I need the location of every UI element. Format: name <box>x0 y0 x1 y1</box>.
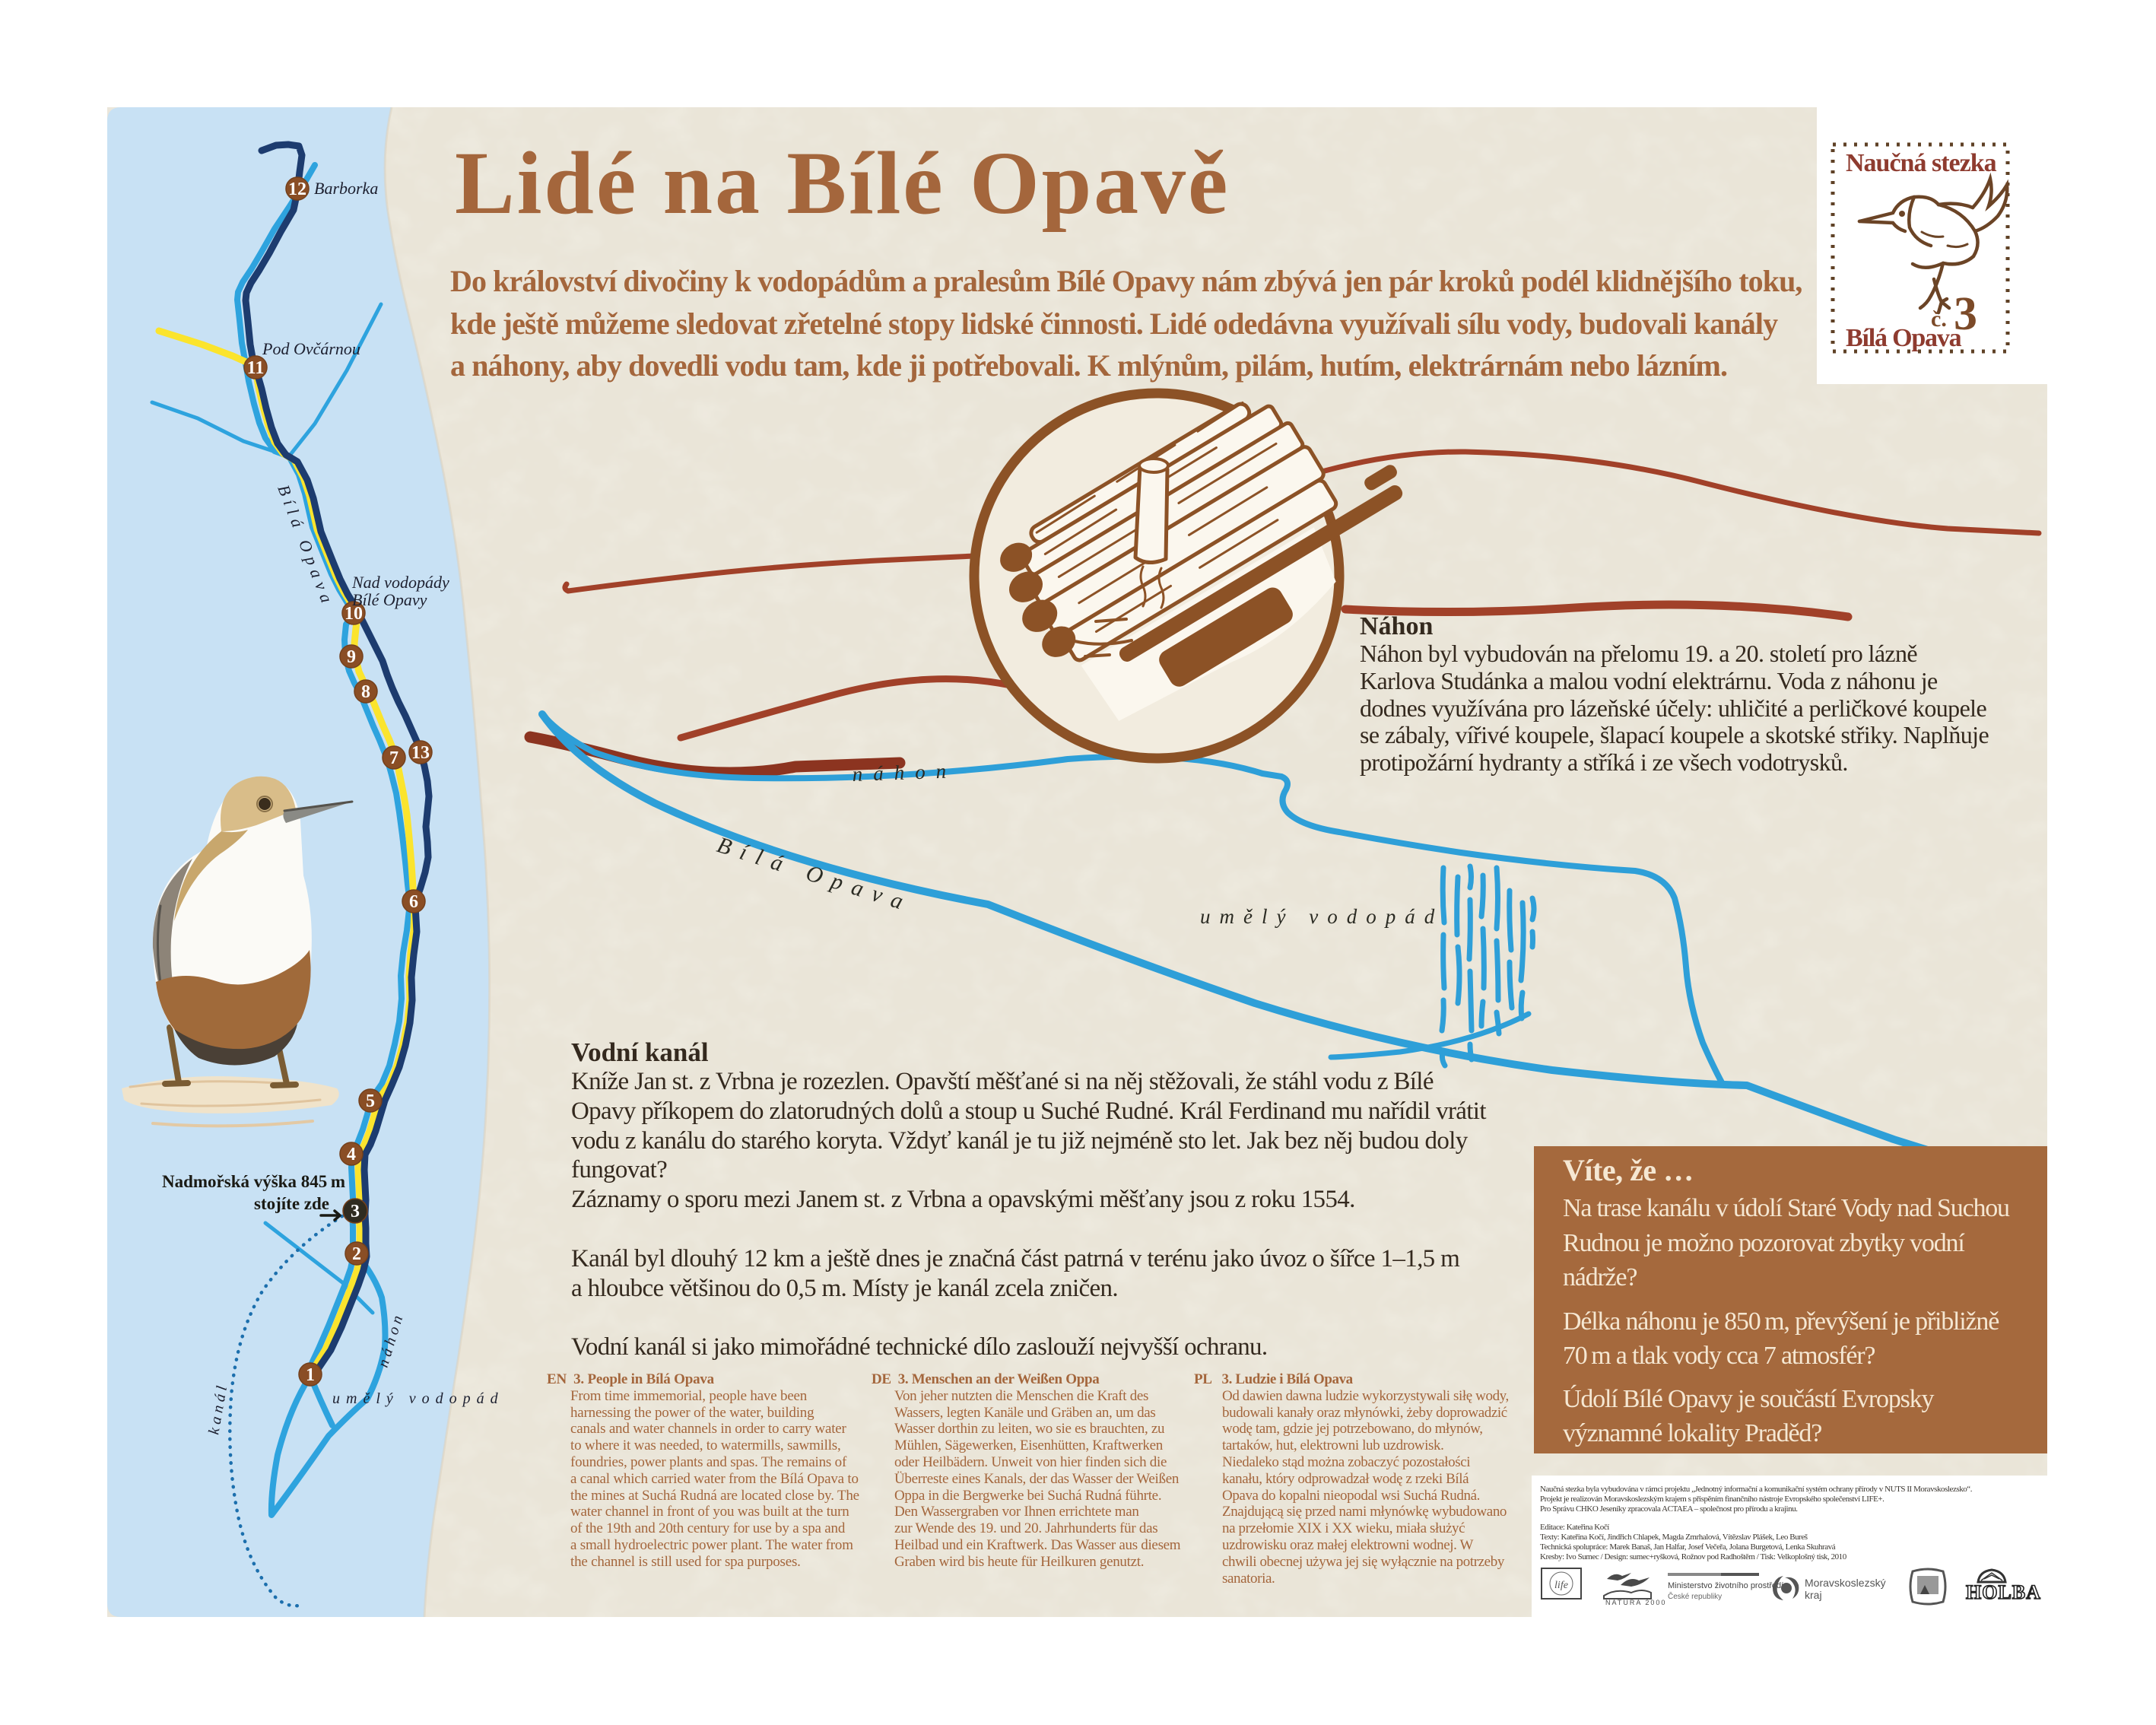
svg-text:umělý vodopád: umělý vodopád <box>1200 905 1443 928</box>
svg-text:České republiky: České republiky <box>1668 1591 1722 1601</box>
svg-text:NATURA 2000: NATURA 2000 <box>1605 1599 1666 1606</box>
svg-text:Bílá Opava: Bílá Opava <box>714 832 916 917</box>
svg-text:kraj: kraj <box>1805 1589 1822 1601</box>
svg-text:Moravskoslezský: Moravskoslezský <box>1805 1577 1886 1589</box>
svg-text:HOLBA: HOLBA <box>1966 1581 2041 1603</box>
svg-text:3: 3 <box>1954 288 1977 340</box>
svg-text:Naučná stezka: Naučná stezka <box>1846 149 1997 177</box>
svg-text:náhon: náhon <box>852 759 957 786</box>
svg-text:life: life <box>1554 1580 1568 1591</box>
svg-text:Ministerstvo životního prostře: Ministerstvo životního prostředí <box>1668 1581 1783 1590</box>
